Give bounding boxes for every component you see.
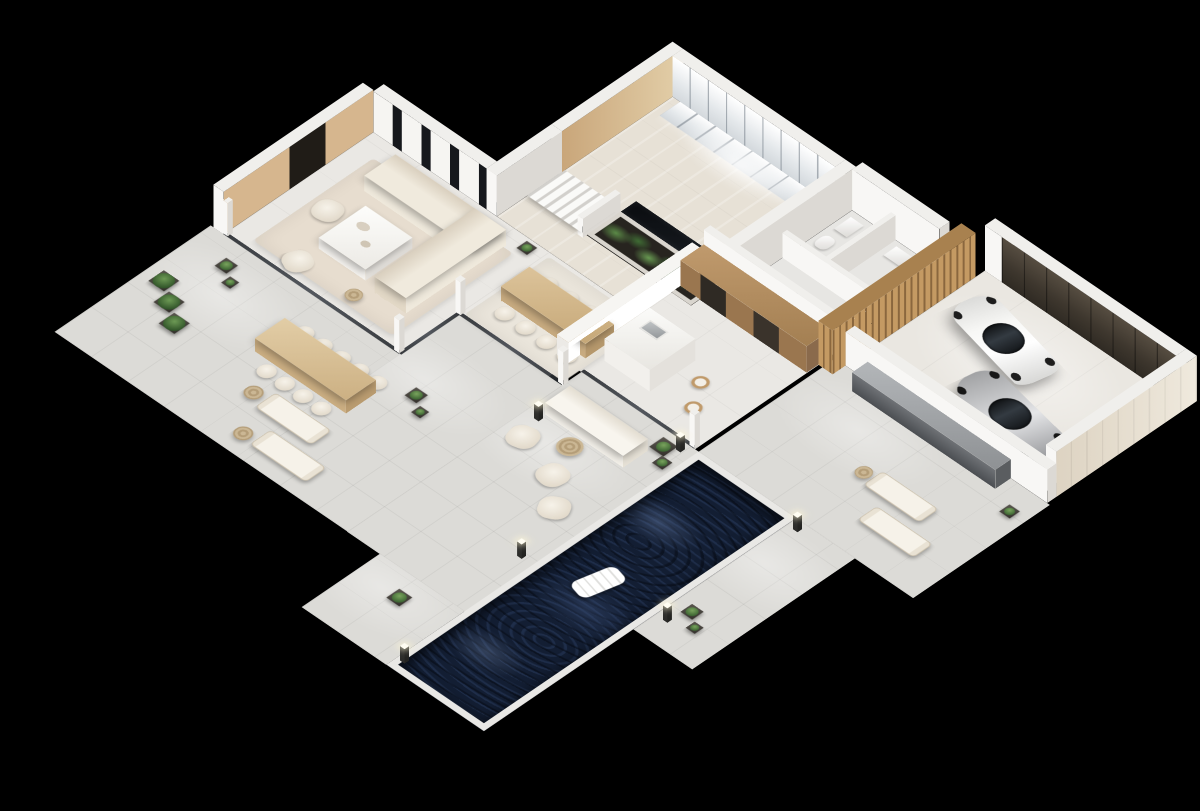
laundry-north-wall xyxy=(852,162,950,229)
bollard-light xyxy=(400,643,409,649)
floor-plan xyxy=(0,0,1200,811)
render-stage xyxy=(0,0,1200,800)
bollard-light xyxy=(793,512,802,518)
outdoor-dining-table xyxy=(255,318,376,401)
bollard-light xyxy=(534,401,543,407)
hall-living-connector-wall xyxy=(487,124,562,175)
terrace-pool-northeast xyxy=(634,518,855,669)
terrace-pool-southwest xyxy=(302,554,465,665)
